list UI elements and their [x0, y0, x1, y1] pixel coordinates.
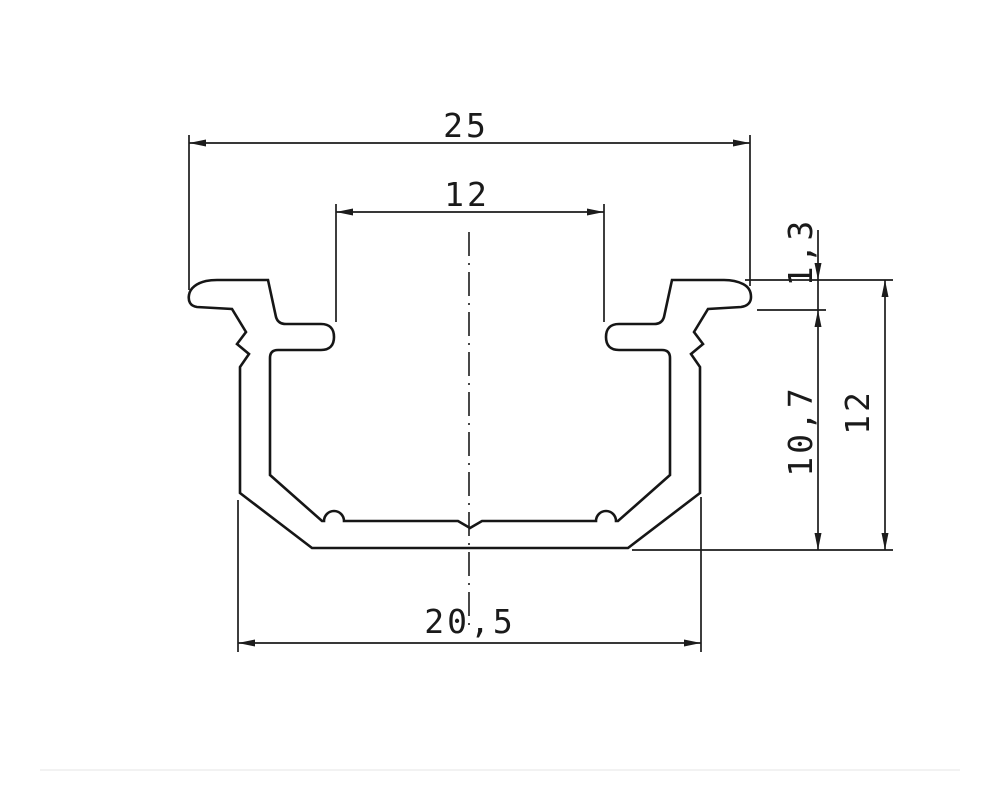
arrowhead-down: [815, 533, 822, 550]
arrowhead-right: [684, 640, 701, 647]
dim-overall-height: 12: [838, 280, 889, 550]
dimension-value: 20,5: [424, 602, 515, 641]
dimension-value-flange: 1,3: [781, 218, 820, 287]
dimension-value: 25: [443, 106, 489, 145]
dim-flange-thickness-and-inner-depth: 1,3 10,7: [781, 218, 822, 550]
arrowhead-left: [238, 640, 255, 647]
arrowhead-up: [815, 310, 822, 327]
arrowhead-right: [733, 140, 750, 147]
dimension-value-depth: 10,7: [781, 385, 820, 476]
dimension-value: 12: [838, 389, 877, 435]
arrowhead-left: [336, 209, 353, 216]
arrowhead-left: [189, 140, 206, 147]
dim-opening-width: 12: [336, 175, 604, 322]
arrowhead-up: [882, 280, 889, 297]
arrowhead-down: [882, 533, 889, 550]
drawing-canvas: 25 12 1,3 10,7: [0, 0, 1000, 800]
arrowhead-right: [587, 209, 604, 216]
technical-drawing: 25 12 1,3 10,7: [0, 0, 1000, 800]
dimension-value: 12: [444, 175, 490, 214]
profile-outline: [189, 280, 751, 548]
